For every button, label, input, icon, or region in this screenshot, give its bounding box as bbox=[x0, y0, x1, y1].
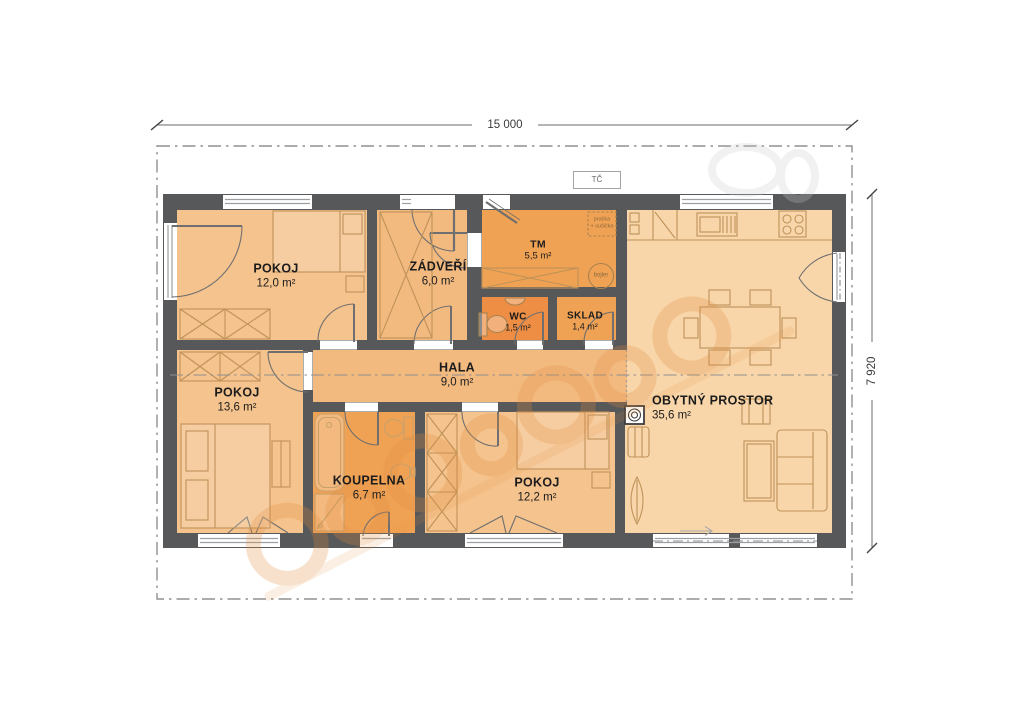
room-name: POKOJ bbox=[514, 476, 559, 491]
room-label-zadveri: ZÁDVEŘÍ 6,0 m² bbox=[410, 260, 467, 289]
dimension-width-label: 15 000 bbox=[480, 119, 529, 131]
room-name: ZÁDVEŘÍ bbox=[410, 260, 467, 275]
washer-label-line2: + sušička bbox=[590, 223, 613, 229]
washer-label-line1: pračka bbox=[594, 217, 611, 223]
dimension-height-label: 7 920 bbox=[866, 350, 878, 393]
room-area: 12,0 m² bbox=[253, 277, 298, 291]
room-label-obytny: OBYTNÝ PROSTOR 35,6 m² bbox=[652, 394, 773, 423]
room-label-pokoj2: POKOJ 13,6 m² bbox=[214, 386, 259, 415]
room-name: POKOJ bbox=[253, 262, 298, 277]
washer-dryer-label: pračka + sušička bbox=[590, 217, 613, 230]
room-area: 1,5 m² bbox=[505, 323, 531, 333]
room-label-sklad: SKLAD 1,4 m² bbox=[567, 311, 603, 332]
room-area: 13,6 m² bbox=[214, 401, 259, 415]
floorplan-page: 15 000 7 920 TČ POKOJ 12,0 m² ZÁDVEŘÍ 6,… bbox=[0, 0, 1024, 724]
room-area: 5,5 m² bbox=[525, 251, 552, 262]
boiler-label: bojler bbox=[594, 273, 609, 280]
room-name: WC bbox=[505, 312, 531, 323]
room-label-hala: HALA 9,0 m² bbox=[439, 361, 475, 390]
room-label-pokoj3: POKOJ 12,2 m² bbox=[514, 476, 559, 505]
room-label-pokoj1: POKOJ 12,0 m² bbox=[253, 262, 298, 291]
room-area: 6,0 m² bbox=[410, 275, 467, 289]
room-area: 6,7 m² bbox=[333, 489, 406, 503]
room-area: 12,2 m² bbox=[514, 491, 559, 505]
room-area: 35,6 m² bbox=[652, 409, 773, 423]
room-area: 1,4 m² bbox=[567, 322, 603, 332]
heat-pump-box: TČ bbox=[573, 171, 621, 189]
room-label-wc: WC 1,5 m² bbox=[505, 312, 531, 333]
room-area: 9,0 m² bbox=[439, 376, 475, 390]
room-name: OBYTNÝ PROSTOR bbox=[652, 394, 773, 409]
bed-pokoj2 bbox=[181, 424, 270, 528]
room-name: POKOJ bbox=[214, 386, 259, 401]
room-name: KOUPELNA bbox=[333, 474, 406, 489]
room-label-koupelna: KOUPELNA 6,7 m² bbox=[333, 474, 406, 503]
room-name: HALA bbox=[439, 361, 475, 376]
room-name: SKLAD bbox=[567, 311, 603, 322]
room-label-tm: TM 5,5 m² bbox=[525, 239, 552, 262]
room-name: TM bbox=[525, 239, 552, 251]
